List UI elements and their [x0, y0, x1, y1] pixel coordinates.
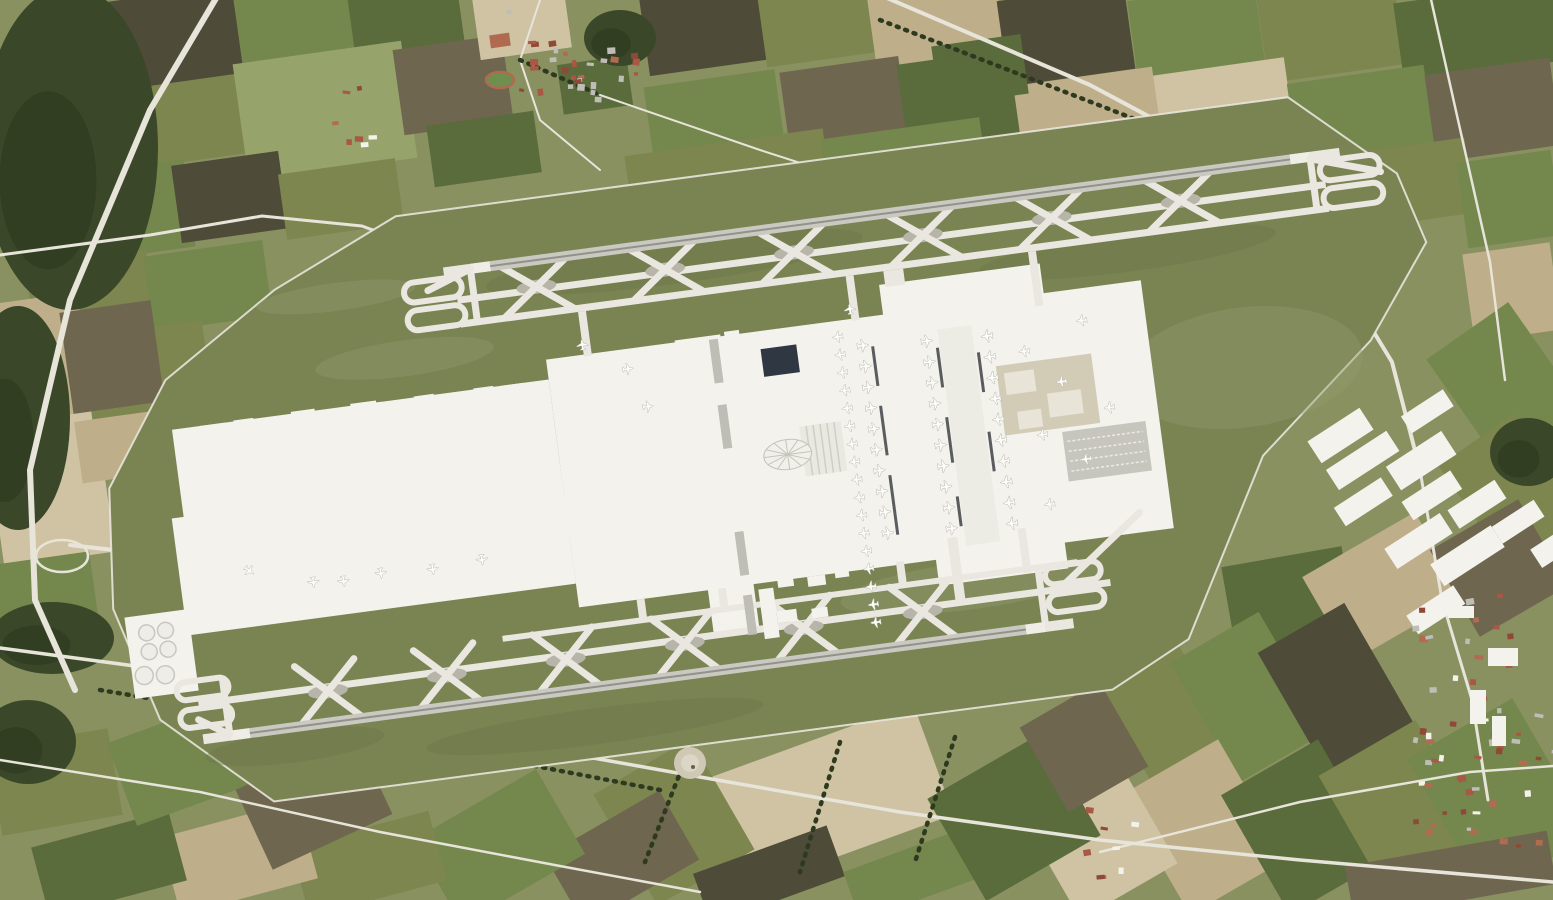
- service-building: [1004, 270, 1023, 284]
- house-roof: [571, 75, 576, 80]
- central-campus-building: [811, 393, 824, 404]
- house-roof: [346, 139, 352, 145]
- central-campus-building: [753, 431, 768, 443]
- house-roof: [1131, 822, 1139, 828]
- house-roof: [632, 58, 640, 66]
- house-roof: [1536, 840, 1543, 846]
- construction-patch: [1017, 409, 1043, 430]
- house-roof: [1457, 776, 1464, 780]
- house-roof: [607, 47, 615, 54]
- house-roof: [1420, 728, 1427, 735]
- central-campus-building: [740, 336, 759, 350]
- house-roof: [631, 53, 639, 60]
- house-roof: [1426, 739, 1435, 744]
- village-large-building: [1492, 716, 1506, 746]
- house-roof: [1460, 809, 1466, 815]
- house-roof: [357, 86, 363, 91]
- house-roof: [1489, 800, 1496, 807]
- house-roof: [1419, 608, 1425, 613]
- central-campus-building: [795, 501, 812, 513]
- gravel-mound-inner: [681, 754, 699, 772]
- service-building: [935, 281, 952, 293]
- house-roof: [1473, 811, 1481, 814]
- aerial-photo-canvas: [0, 0, 1553, 900]
- house-roof: [590, 90, 595, 96]
- house-roof: [1413, 819, 1419, 825]
- tennis-courts: [489, 33, 511, 49]
- sports-track-oval: [486, 72, 514, 88]
- house-roof: [355, 136, 364, 142]
- house-roof: [1472, 787, 1480, 791]
- house-roof: [577, 84, 585, 91]
- house-roof: [563, 52, 568, 57]
- house-roof: [610, 56, 619, 63]
- house-roof: [1412, 625, 1420, 631]
- forest-shadow: [1498, 440, 1540, 477]
- house-roof: [1470, 679, 1476, 685]
- house-roof: [571, 60, 577, 68]
- house-roof: [1430, 823, 1435, 828]
- central-campus-building: [772, 539, 789, 551]
- central-campus-building: [800, 540, 819, 554]
- central-campus-building: [811, 607, 828, 619]
- house-roof: [1083, 849, 1091, 856]
- house-roof: [361, 142, 369, 147]
- house-roof: [530, 59, 538, 65]
- house-roof: [537, 88, 543, 96]
- maintenance-hangar: [378, 501, 432, 539]
- house-roof: [1516, 844, 1522, 848]
- gravel-mound: [674, 747, 706, 779]
- house-roof: [1536, 757, 1542, 761]
- house-roof: [1085, 807, 1093, 814]
- central-campus-building: [830, 532, 843, 543]
- cargo-building: [561, 494, 606, 539]
- house-roof: [1467, 827, 1471, 830]
- house-roof: [568, 84, 573, 89]
- satellite-image: [0, 0, 1553, 900]
- house-roof: [591, 82, 597, 89]
- house-roof: [1112, 846, 1119, 850]
- house-roof: [1453, 675, 1459, 681]
- house-roof: [530, 66, 539, 71]
- gravel-mound-structure: [691, 765, 695, 769]
- house-roof: [1450, 721, 1457, 727]
- central-campus-building: [777, 574, 794, 588]
- farm-field-patch: [59, 300, 164, 414]
- house-roof: [1507, 633, 1514, 639]
- house-roof: [561, 67, 568, 74]
- village-large-building: [1488, 648, 1518, 666]
- house-roof: [1497, 708, 1501, 713]
- maintenance-hangar: [239, 514, 301, 557]
- central-campus-building: [765, 336, 782, 348]
- central-campus-building: [754, 400, 771, 414]
- link-taxiway: [883, 269, 905, 288]
- construction-patch: [1047, 389, 1084, 417]
- forest-shadow: [591, 28, 631, 59]
- house-roof: [1425, 760, 1432, 765]
- central-campus-building: [834, 566, 849, 578]
- village-large-building: [1448, 606, 1474, 618]
- house-roof: [1119, 868, 1124, 875]
- house-roof: [549, 57, 556, 62]
- house-roof: [548, 40, 556, 47]
- service-building: [981, 275, 998, 287]
- solar-panel-roof: [761, 344, 800, 377]
- house-roof: [528, 41, 536, 44]
- farm-field-patch: [1456, 150, 1553, 248]
- construction-patch: [1004, 369, 1037, 395]
- house-roof: [1496, 748, 1503, 755]
- house-roof: [1474, 655, 1483, 660]
- service-building: [957, 276, 976, 290]
- house-roof: [1500, 838, 1508, 844]
- house-roof: [1096, 875, 1105, 880]
- house-roof: [554, 47, 559, 53]
- house-roof: [1429, 687, 1436, 693]
- house-roof: [1426, 733, 1432, 740]
- house-roof: [1419, 781, 1425, 786]
- house-roof: [1465, 638, 1470, 644]
- house-roof: [369, 135, 378, 140]
- house-roof: [600, 58, 607, 63]
- house-roof: [1497, 594, 1503, 599]
- house-roof: [1516, 732, 1521, 735]
- house-roof: [1439, 755, 1444, 762]
- house-roof: [1442, 811, 1447, 815]
- house-roof: [1493, 625, 1499, 630]
- service-building: [886, 286, 905, 300]
- central-campus-building: [822, 498, 837, 512]
- house-roof: [634, 72, 638, 75]
- house-roof: [1426, 829, 1433, 836]
- central-campus-building: [797, 334, 812, 346]
- house-roof: [595, 97, 602, 103]
- village-large-building: [1470, 690, 1486, 724]
- house-roof: [587, 62, 594, 66]
- house-roof: [1525, 790, 1532, 797]
- house-roof: [619, 76, 624, 83]
- central-campus-building: [767, 499, 786, 513]
